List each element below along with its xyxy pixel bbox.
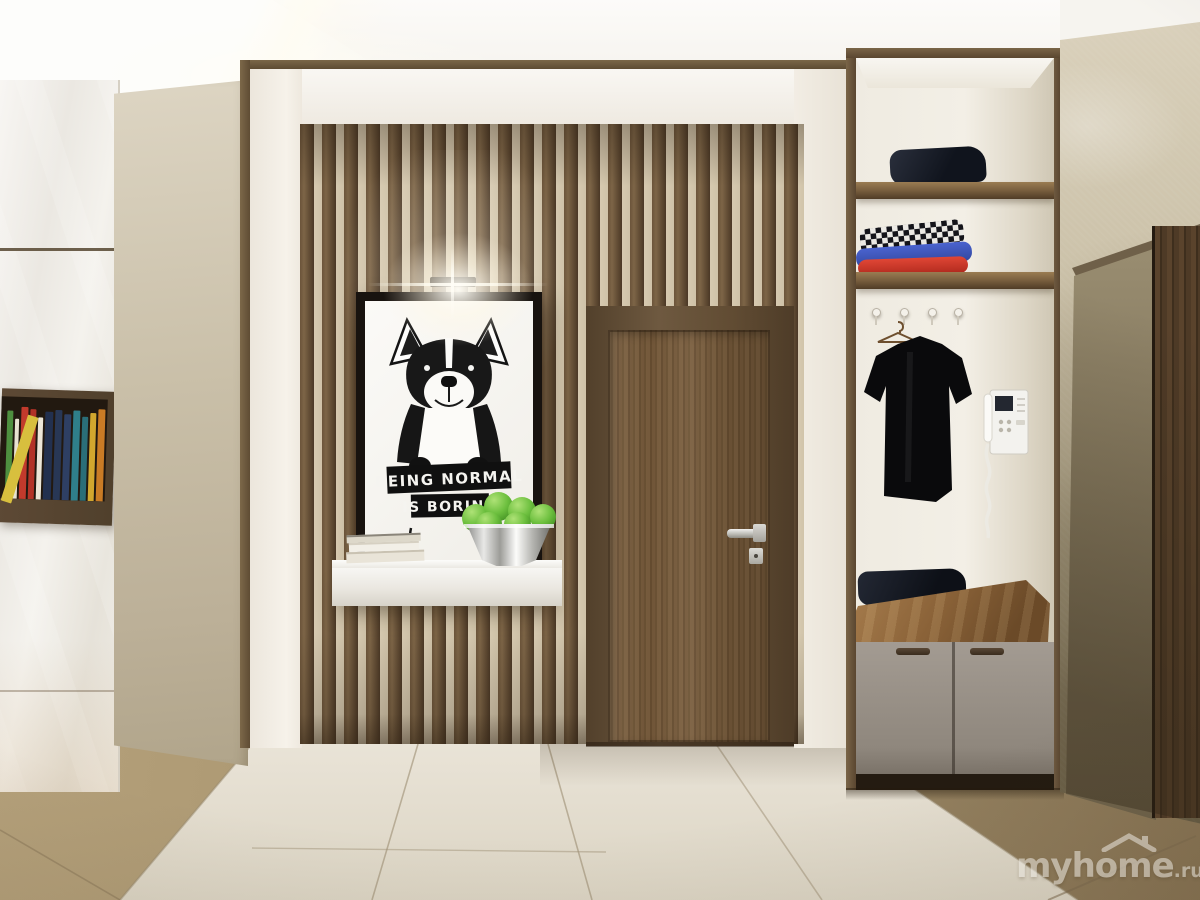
cabinet-handle-right: [970, 648, 1004, 655]
watermark-brand: myhome: [1016, 846, 1174, 886]
wardrobe-seam-line: [0, 248, 118, 251]
cabinet-door-gap: [952, 642, 955, 774]
hallway-interior-render: BEING NORMAL IS BORING: [0, 0, 1200, 900]
book-spine: [71, 411, 80, 501]
alcove-ceiling: [250, 69, 848, 127]
intercom-phone: [980, 388, 1032, 564]
closet-shelf-lower: [856, 272, 1054, 289]
shoe-cabinet: [854, 642, 1056, 774]
alcove-trim-left: [240, 60, 250, 748]
closet-ceiling: [856, 58, 1054, 88]
alcove-trim-top: [240, 60, 856, 69]
book-stack: [344, 533, 427, 564]
wall-shadow-overlay: [1060, 0, 1200, 900]
watermark-suffix: .ru: [1174, 860, 1200, 882]
watermark-text: myhome.ru: [1016, 846, 1200, 886]
folded-item-top-shelf: [889, 146, 987, 187]
picture-light-glow: [358, 202, 558, 370]
alcove-side-wall-left: [250, 69, 302, 748]
closet-frame-left: [846, 48, 856, 790]
floor-shadow: [540, 744, 850, 786]
book-spine: [96, 409, 106, 501]
closet-shelf-upper: [856, 182, 1054, 199]
console-shelf: [332, 568, 562, 606]
textured-stone-wall: [1060, 0, 1200, 900]
door-bottom-shadow: [586, 742, 794, 747]
light-flare-horizontal: [368, 283, 548, 286]
watermark: myhome.ru: [1016, 834, 1200, 890]
book-spine: [43, 412, 53, 500]
door-lock-plate: [749, 548, 763, 564]
bowl-rim-highlight: [464, 524, 554, 528]
wall-hook: [928, 308, 937, 328]
door-handle-rosette: [753, 524, 766, 542]
book-spine: [52, 410, 62, 500]
beige-column: [114, 80, 248, 766]
closet-frame-top: [846, 48, 1064, 58]
book-spine: [79, 417, 88, 501]
wardrobe-floor-reflection: [0, 640, 118, 792]
book-spine: [62, 414, 72, 500]
hanging-black-jacket: [850, 332, 990, 538]
cabinet-handle-left: [896, 648, 930, 655]
wall-bookshelf: [0, 388, 116, 526]
wall-hook: [954, 308, 963, 328]
entry-closet: [846, 48, 1064, 790]
closet-floor-shadow: [846, 788, 1064, 800]
light-flare-vertical: [451, 248, 454, 320]
